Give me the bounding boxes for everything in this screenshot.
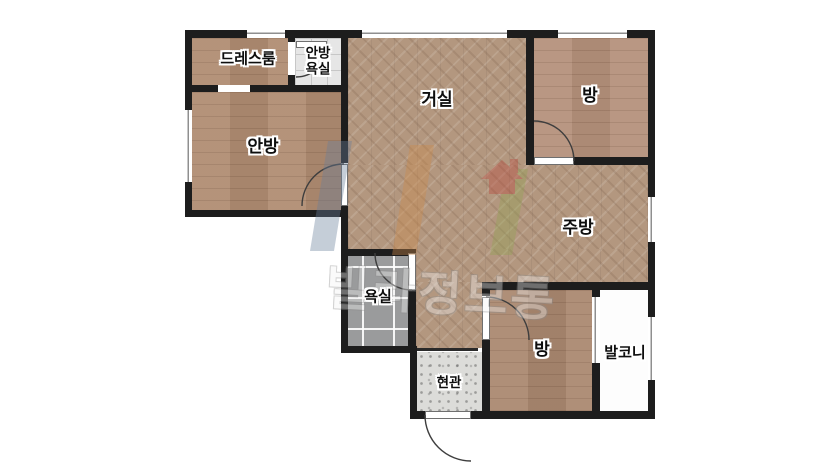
room-label-dressroom: 드레스룸 bbox=[220, 50, 275, 67]
floorplan-canvas: 빌라정보통 드레스룸 안방 욕실 거실 방 안방 주방 욕실 방 발코니 현관 bbox=[0, 0, 840, 472]
room-label-master-bedroom: 안방 bbox=[247, 138, 278, 158]
room-label-master-bathroom: 안방 욕실 bbox=[306, 46, 331, 77]
door-swing-arcs bbox=[0, 0, 840, 472]
room-label-balcony: 발코니 bbox=[604, 344, 645, 361]
room-label-entrance: 현관 bbox=[437, 376, 462, 392]
room-label-bathroom: 욕실 bbox=[364, 288, 392, 305]
room-label-living-room: 거실 bbox=[421, 91, 452, 111]
door-arc-bedroom-ne bbox=[534, 121, 574, 161]
door-arc-bathroom bbox=[375, 253, 412, 290]
door-arc-bedroom-s bbox=[486, 297, 529, 340]
room-label-bedroom-ne: 방 bbox=[582, 87, 598, 107]
room-label-kitchen: 주방 bbox=[562, 219, 593, 239]
door-arc-entrance bbox=[425, 415, 471, 461]
door-arc-master-bedroom bbox=[302, 164, 344, 206]
room-label-bedroom-s: 방 bbox=[534, 341, 550, 361]
